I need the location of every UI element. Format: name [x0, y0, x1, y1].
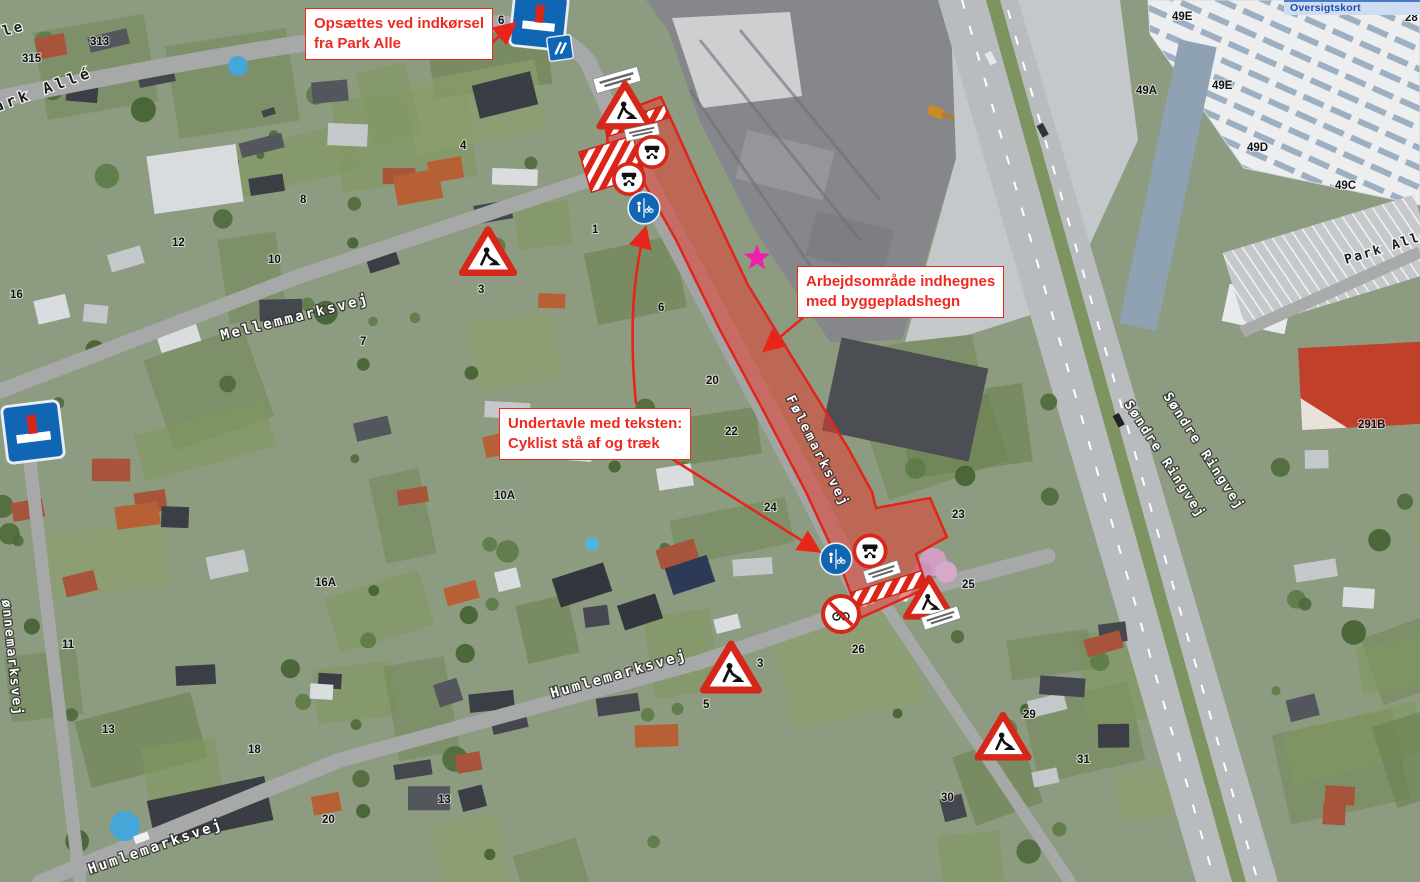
no-bicycles-sign: [823, 596, 859, 632]
house-number: 22: [725, 426, 738, 438]
shared-path-sign: [820, 543, 852, 575]
annotation-arbejdsomraade: Arbejdsområde indhegnes med byggepladshe…: [797, 266, 1004, 318]
no-motor-vehicles-sign: [637, 137, 667, 167]
house-number: 31: [1077, 754, 1090, 766]
house-number: 291B: [1358, 419, 1386, 431]
house-number: 49E: [1212, 80, 1233, 92]
house-number: 3: [757, 658, 763, 670]
house-number: 13: [102, 724, 115, 736]
no-motor-vehicles-sign: [854, 535, 885, 566]
house-number: 20: [322, 814, 335, 826]
annotation-line: Undertavle med teksten:: [508, 414, 682, 434]
house-number: 25: [962, 579, 975, 591]
house-number: 1: [592, 224, 599, 236]
oversigtskort-tab[interactable]: Oversigtskort: [1284, 0, 1420, 15]
annotation-line: Opsættes ved indkørsel: [314, 14, 484, 34]
map-stage: leark AlléMellemmarksvejFølemarksvejSønd…: [0, 0, 1420, 882]
house-number: 16: [10, 289, 23, 301]
house-number: 30: [941, 792, 954, 804]
house-number: 49C: [1335, 180, 1356, 192]
aerial-map: leark AlléMellemmarksvejFølemarksvejSønd…: [0, 0, 1420, 882]
house-number: 13: [438, 794, 451, 806]
house-number: 12: [172, 237, 185, 249]
annotation-line: Arbejdsområde indhegnes: [806, 272, 995, 292]
dead-end-sign: [1, 400, 65, 464]
house-number: 313: [90, 36, 109, 48]
house-number: 315: [22, 53, 42, 65]
house-number: 6: [658, 302, 664, 314]
house-number: 7: [360, 336, 366, 348]
shared-path-sign: [628, 192, 660, 224]
house-number: 6: [498, 15, 504, 27]
no-motor-vehicles-sign: [614, 164, 644, 194]
annotation-line: fra Park Alle: [314, 34, 484, 54]
annotation-undertavle: Undertavle med teksten: Cyklist stå af o…: [499, 408, 691, 460]
house-number: 18: [248, 744, 261, 756]
house-number: 5: [703, 699, 710, 711]
annotation-line: med byggepladshegn: [806, 292, 995, 312]
house-number: 8: [300, 194, 307, 206]
annotation-opsaettes: Opsættes ved indkørsel fra Park Alle: [305, 8, 493, 60]
house-number: 24: [764, 502, 777, 514]
annotation-line: Cyklist stå af og træk: [508, 434, 682, 454]
house-number: 49A: [1136, 85, 1157, 97]
house-number: 49E: [1172, 11, 1193, 23]
house-number: 10A: [494, 490, 515, 502]
house-number: 10: [268, 254, 281, 266]
house-number: 11: [62, 639, 75, 651]
blue-info-sign: [546, 34, 573, 61]
house-number: 29: [1023, 709, 1036, 721]
house-number: 26: [852, 644, 865, 656]
house-number: 20: [706, 375, 719, 387]
house-number: 3: [478, 284, 484, 296]
house-number: 4: [460, 140, 467, 152]
red-roof-building: [1298, 342, 1420, 430]
house-number: 16A: [315, 577, 336, 589]
house-number: 49D: [1247, 142, 1268, 154]
house-number: 23: [952, 509, 965, 521]
